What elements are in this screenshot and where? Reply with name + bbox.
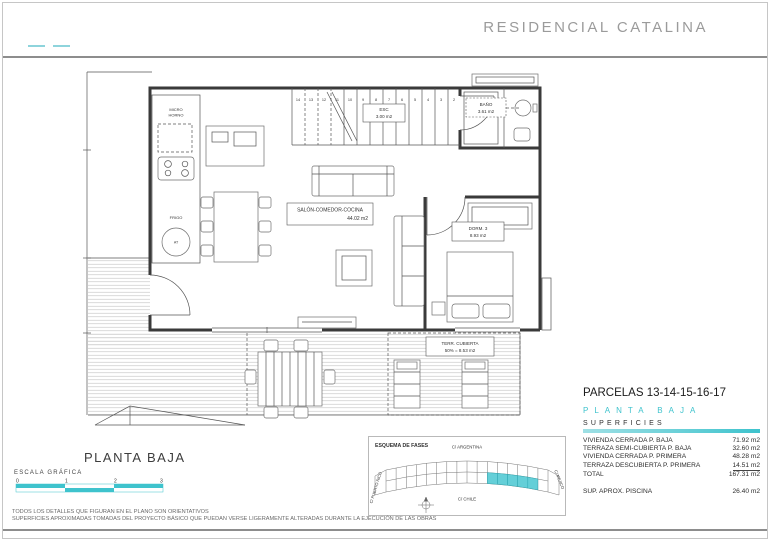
accent-bar — [583, 429, 760, 433]
exterior-planter — [472, 74, 538, 86]
salon-label: SALÓN-COMEDOR-COCINA 44.02 m2 — [287, 203, 373, 225]
svg-text:FRIGO: FRIGO — [170, 215, 183, 220]
sofa-set — [298, 166, 424, 328]
surfaces-heading: SUPERFICIES — [583, 420, 760, 427]
bedroom: DORM. 3 8.93 m2 — [432, 203, 551, 330]
svg-text:HORNO: HORNO — [169, 113, 184, 118]
svg-text:3: 3 — [160, 479, 163, 485]
svg-text:BAÑO: BAÑO — [480, 101, 493, 107]
table-row-pool: SUP. APROX. PISCINA26.40 m2 — [583, 488, 760, 496]
svg-text:5: 5 — [414, 98, 416, 102]
svg-text:3: 3 — [440, 98, 442, 102]
logo-dash-icon — [53, 45, 70, 47]
svg-text:8: 8 — [375, 98, 377, 102]
header-rule — [3, 56, 767, 58]
street-label-bottom: C/ CHILE — [458, 497, 476, 502]
svg-text:8.93 m2: 8.93 m2 — [470, 233, 487, 238]
svg-text:14: 14 — [296, 98, 300, 102]
parcels-title: PARCELAS 13-14-15-16-17 — [583, 387, 760, 399]
plan-sheet: RESIDENCIAL CATALINA — [0, 0, 770, 541]
sink-unit: AT — [162, 228, 190, 256]
svg-text:TERR. CUBIERTA: TERR. CUBIERTA — [441, 341, 478, 346]
outdoor-dining — [245, 340, 335, 418]
svg-text:50% = 8.53 m2: 50% = 8.53 m2 — [445, 348, 476, 353]
cooktop — [158, 157, 194, 180]
svg-text:0: 0 — [16, 479, 19, 485]
svg-text:2: 2 — [453, 98, 455, 102]
street-label-top: C/ ARGENTINA — [452, 445, 482, 450]
stair-tread-numbers: 14 13 12 11 10 9 8 7 6 5 4 3 2 — [296, 98, 455, 102]
logo-mark — [28, 45, 70, 47]
table-row: VIVIENDA CERRADA P. PRIMERA48.28 m2 — [583, 453, 760, 461]
table-row: VIVIENDA CERRADA P. BAJA71.92 m2 — [583, 437, 760, 445]
page-title: PLANTA BAJA — [84, 450, 186, 465]
svg-text:4: 4 — [427, 98, 429, 102]
planter-strip — [542, 278, 551, 330]
svg-text:6: 6 — [401, 98, 403, 102]
graphic-scale-bar: 0 1 2 3 — [14, 477, 174, 494]
table-row-total: TOTAL167.31 m2 — [583, 471, 760, 479]
disclaimer: TODOS LOS DETALLES QUE FIGURAN EN EL PLA… — [12, 509, 436, 523]
terrace-label: TERR. CUBIERTA 50% = 8.53 m2 — [426, 337, 494, 356]
table-row: TERRAZA SEMI-CUBIERTA P. BAJA32.60 m2 — [583, 445, 760, 453]
svg-text:SALÓN-COMEDOR-COCINA: SALÓN-COMEDOR-COCINA — [297, 207, 364, 214]
coffee-table — [336, 250, 372, 286]
stairs-label: ESC 3.00 m2 — [363, 104, 405, 122]
svg-text:13: 13 — [309, 98, 313, 102]
logo-dash-icon — [28, 45, 45, 47]
phase-scheme: ESQUEMA DE FASES C/ ARGENTINA C/ CHILE C… — [368, 436, 566, 516]
svg-text:11: 11 — [335, 98, 339, 102]
staircase: 14 13 12 11 10 9 8 7 6 5 4 3 2 ESC 3.00 … — [292, 88, 460, 145]
nightstand — [432, 302, 445, 315]
disclaimer-line: SUPERFICIES APROXIMADAS TOMADAS DEL PROY… — [12, 516, 436, 523]
bathroom-label: BAÑO 3.61 m2 — [466, 98, 521, 117]
svg-text:DORM. 3: DORM. 3 — [469, 226, 488, 231]
disclaimer-line: TODOS LOS DETALLES QUE FIGURAN EN EL PLA… — [12, 509, 436, 516]
svg-text:12: 12 — [322, 98, 326, 102]
kitchen: MICRO HORNO FRIGO AT — [152, 95, 200, 263]
svg-text:1: 1 — [65, 479, 68, 485]
svg-text:44.02 m2: 44.02 m2 — [347, 216, 368, 222]
bedroom-label: DORM. 3 8.93 m2 — [452, 222, 504, 241]
footer-rule — [3, 529, 767, 531]
svg-text:3.00 m2: 3.00 m2 — [376, 114, 393, 119]
table-row: TERRAZA DESCUBIERTA P. PRIMERA14.51 m2 — [583, 462, 760, 471]
svg-text:7: 7 — [388, 98, 390, 102]
bathroom: BAÑO 3.61 m2 — [464, 88, 537, 148]
svg-text:2: 2 — [114, 479, 117, 485]
svg-text:9: 9 — [362, 98, 364, 102]
project-title: RESIDENCIAL CATALINA — [483, 19, 708, 36]
floor-subtitle: PLANTA BAJA — [583, 406, 760, 415]
svg-text:MICRO: MICRO — [169, 107, 182, 112]
floor-plan-drawing: 14 13 12 11 10 9 8 7 6 5 4 3 2 ESC 3.00 … — [80, 62, 555, 434]
tv-unit — [298, 317, 356, 328]
phase-scheme-title: ESQUEMA DE FASES — [375, 443, 429, 449]
svg-text:ESC: ESC — [379, 107, 389, 112]
oven-column — [158, 124, 192, 152]
dining-table — [201, 192, 271, 262]
svg-text:10: 10 — [348, 98, 352, 102]
scale-label: ESCALA GRÁFICA — [14, 470, 82, 476]
kitchen-island — [206, 126, 264, 166]
svg-text:3.61 m2: 3.61 m2 — [478, 109, 495, 114]
bed — [447, 252, 513, 322]
areas-table: PARCELAS 13-14-15-16-17 PLANTA BAJA SUPE… — [583, 387, 760, 496]
